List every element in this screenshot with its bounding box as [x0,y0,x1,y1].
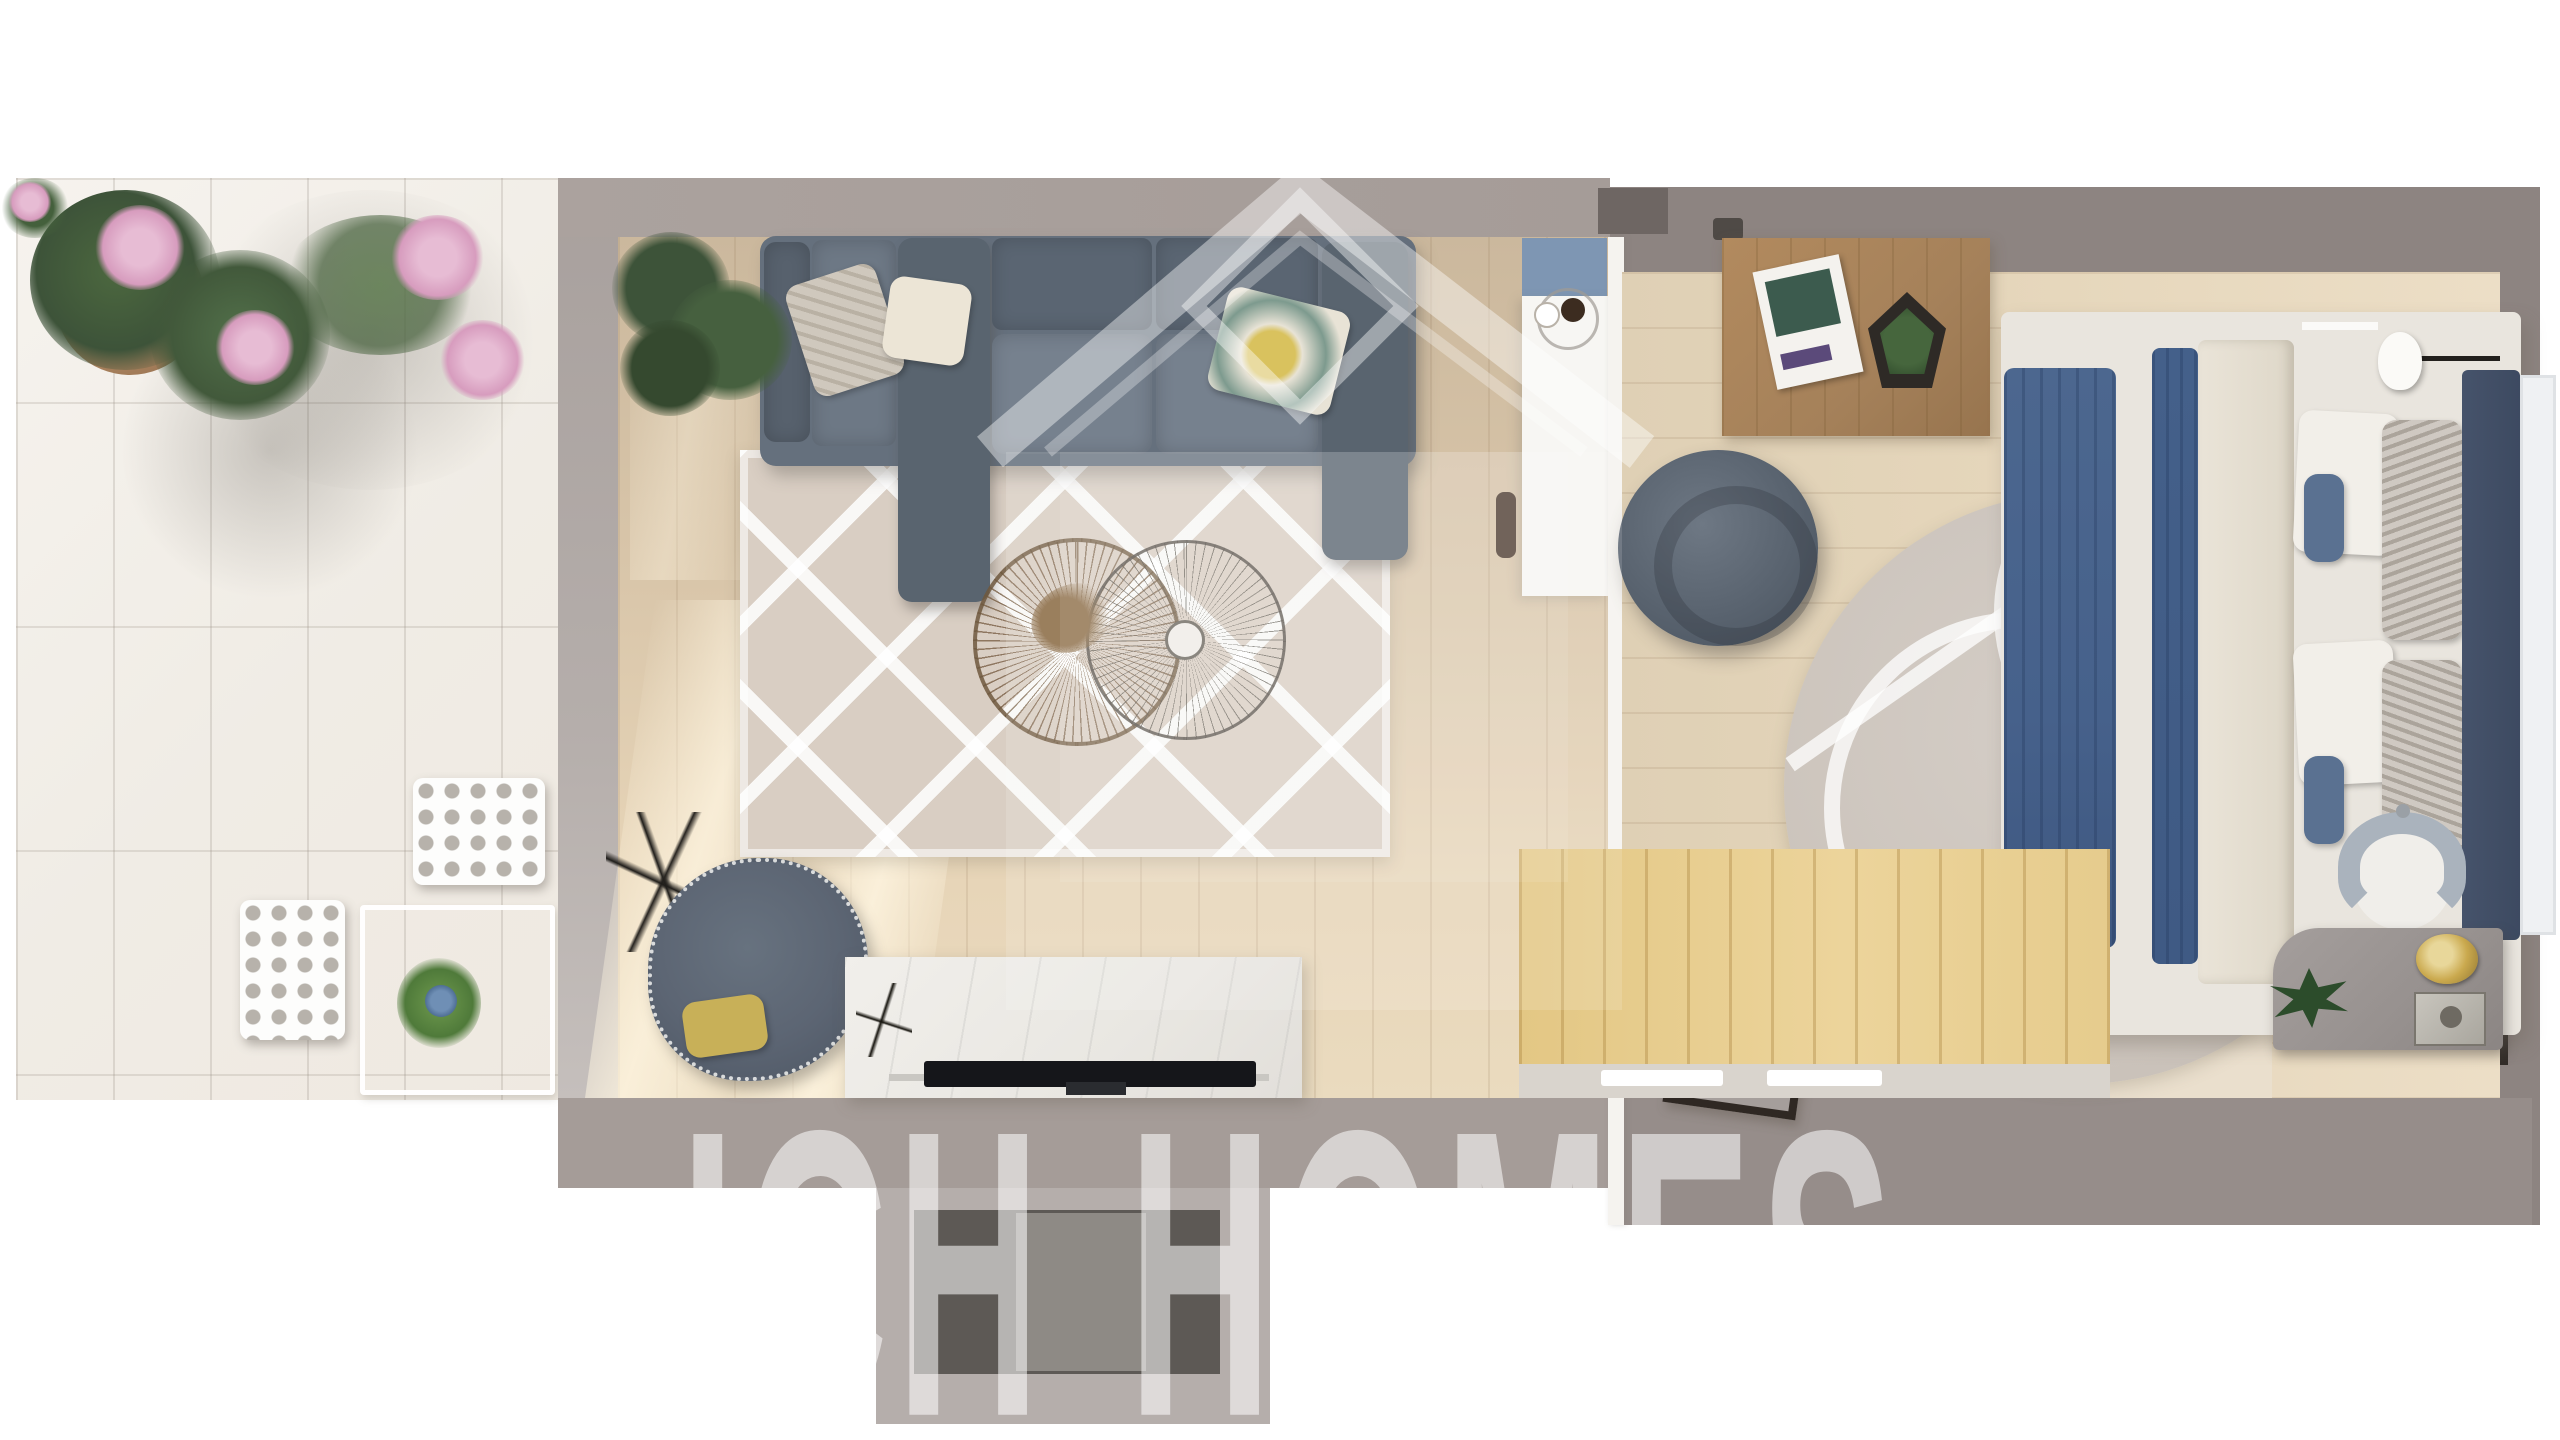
brand-watermark-text: ICH HOMES [680,1072,1901,1440]
floor-plan-render: ICH HOMES [0,0,2560,1440]
